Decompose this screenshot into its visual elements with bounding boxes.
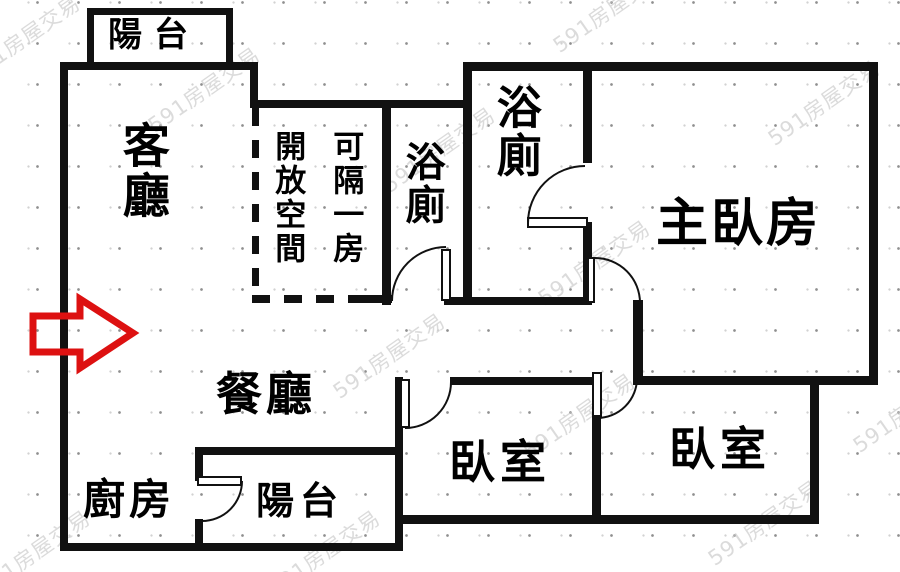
door-arc-bedroom-right [597, 378, 637, 418]
door-arc-balconyB [202, 481, 242, 521]
door-arc-bedroom-mid [405, 382, 451, 428]
entrance-arrow-icon [33, 299, 133, 368]
floor-plan: 591房屋交易 591房屋交易 591房屋交易 591房屋交易 591房屋交易 … [0, 0, 900, 572]
door-arc-bath1 [392, 247, 446, 301]
door-arc-master [595, 258, 640, 303]
door-arcs-layer [0, 0, 900, 572]
door-arc-bath2 [528, 166, 585, 223]
